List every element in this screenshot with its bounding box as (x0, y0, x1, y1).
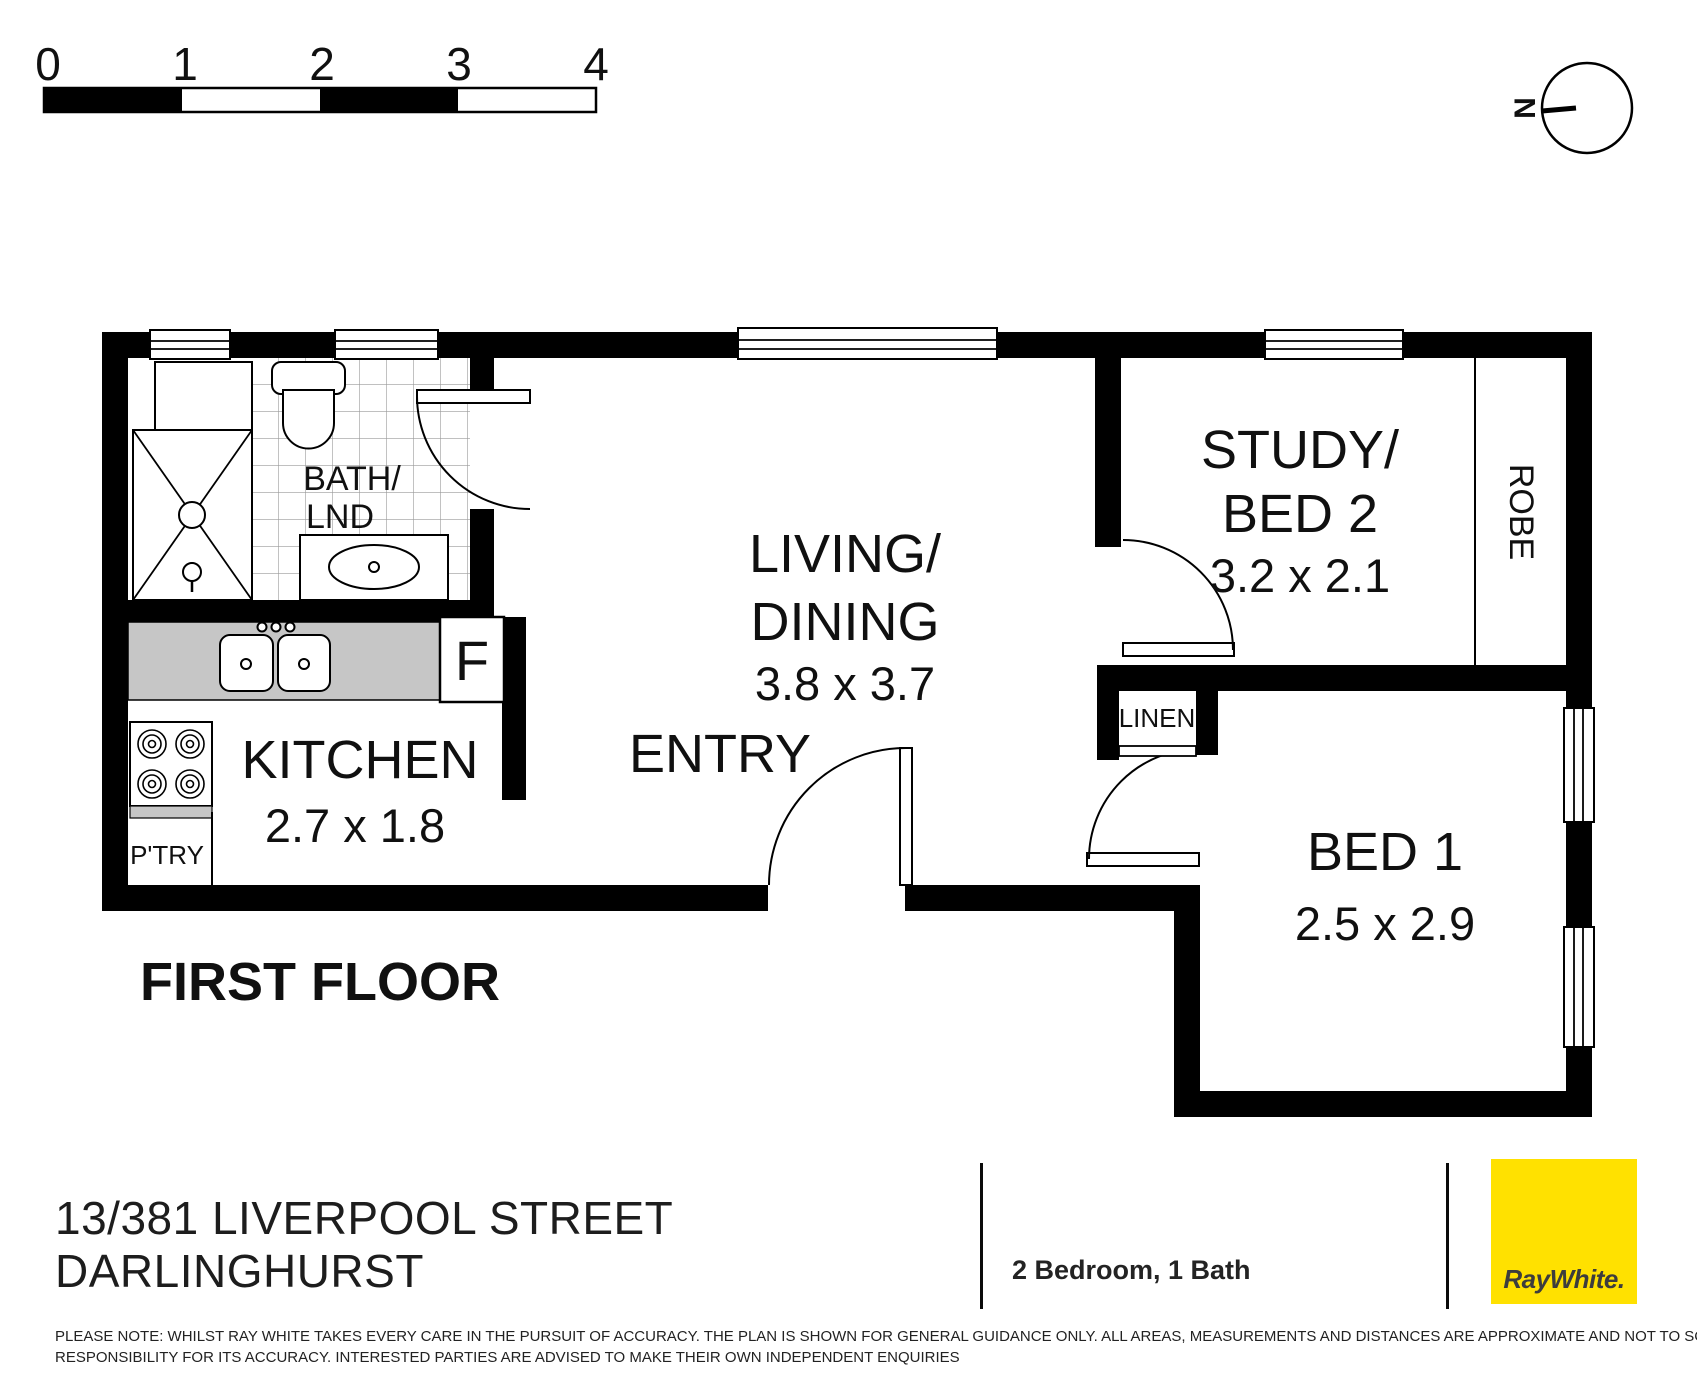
floor-title: FIRST FLOOR (140, 952, 500, 1012)
bed-bath-summary: 2 Bedroom, 1 Bath (1012, 1255, 1251, 1286)
entry-label: ENTRY (629, 724, 811, 784)
study-dims: 3.2 x 2.1 (1210, 549, 1390, 602)
footer-divider (1446, 1163, 1449, 1309)
wall-bed1-bottom (1174, 1091, 1592, 1117)
raywhite-logo: RayWhite. (1491, 1159, 1637, 1304)
wall-bed1-left (1174, 885, 1200, 1117)
scale-tick-1: 1 (172, 38, 198, 90)
door-linen (1119, 746, 1196, 756)
wall-bottom-mid (905, 885, 1200, 911)
vanity-fixture (300, 535, 448, 600)
window-bath-1 (150, 330, 230, 359)
window-study (1265, 330, 1403, 359)
footer-divider (980, 1163, 983, 1309)
disclaimer-text: PLEASE NOTE: WHILST RAY WHITE TAKES EVER… (55, 1326, 1650, 1368)
scale-bar-segment (320, 88, 458, 112)
scale-tick-4: 4 (583, 38, 609, 90)
floorplan-page: 0 1 2 3 4 N (0, 0, 1697, 1392)
fridge-label: F (455, 629, 489, 692)
wall-study-south (1097, 665, 1592, 691)
shower-fixture (133, 430, 252, 600)
window-bath-2 (335, 330, 438, 359)
scale-tick-0: 0 (35, 38, 61, 90)
wall-left (102, 332, 128, 911)
wall-linen-right (1196, 665, 1218, 755)
raywhite-wordmark: RayWhite. (1503, 1264, 1624, 1295)
room-labels: BATH/ LND KITCHEN 2.7 x 1.8 P'TRY LIVING… (130, 420, 1540, 1012)
kitchen-dims: 2.7 x 1.8 (265, 799, 445, 852)
compass-north-label: N (1509, 97, 1542, 119)
linen-label: LINEN (1119, 703, 1196, 733)
scale-bar: 0 1 2 3 4 (35, 38, 609, 112)
wall-study-left (1095, 358, 1121, 547)
living-dims: 3.8 x 3.7 (755, 657, 935, 710)
address-line1: 13/381 LIVERPOOL STREET (55, 1192, 673, 1245)
floorplan-drawing: 0 1 2 3 4 N (0, 0, 1697, 1392)
bath-cabinet (155, 362, 252, 430)
window-living (738, 328, 997, 359)
bed1-label: BED 1 (1307, 822, 1463, 882)
disclaimer-line2: RESPONSIBILITY FOR ITS ACCURACY. INTERES… (55, 1347, 1650, 1368)
wall-bottom-left (102, 885, 768, 911)
fridge-box: F (440, 617, 504, 702)
disclaimer-line1: PLEASE NOTE: WHILST RAY WHITE TAKES EVER… (55, 1326, 1650, 1347)
bed1-dims: 2.5 x 2.9 (1295, 897, 1475, 950)
bath-label-line1: BATH/ (303, 460, 401, 498)
stove-fixture (130, 722, 212, 806)
wall-linen-left (1097, 665, 1119, 760)
pantry-label: P'TRY (130, 840, 204, 870)
study-label-line2: BED 2 (1222, 484, 1378, 544)
window-bed1-lower (1564, 927, 1594, 1047)
scale-tick-3: 3 (446, 38, 472, 90)
wall-bath-right-stub (470, 358, 494, 392)
living-label-line2: DINING (751, 592, 940, 652)
robe-label: ROBE (1502, 464, 1540, 560)
scale-bar-segment (44, 88, 182, 112)
wall-bath-right (470, 509, 494, 622)
kitchen-label: KITCHEN (241, 730, 478, 790)
study-label-line1: STUDY/ (1201, 420, 1399, 480)
living-label-line1: LIVING/ (749, 524, 941, 584)
north-compass-icon: N (1509, 63, 1632, 153)
wall-kitchen-right (502, 617, 526, 800)
door-bed1 (1087, 749, 1199, 866)
window-bed1-upper (1564, 708, 1594, 822)
property-address: 13/381 LIVERPOOL STREET DARLINGHURST (55, 1192, 673, 1298)
address-line2: DARLINGHURST (55, 1245, 673, 1298)
scale-tick-2: 2 (309, 38, 335, 90)
bench-strip (130, 806, 212, 818)
wall-bath-bottom (128, 600, 470, 622)
bath-label-line2: LND (306, 498, 374, 536)
